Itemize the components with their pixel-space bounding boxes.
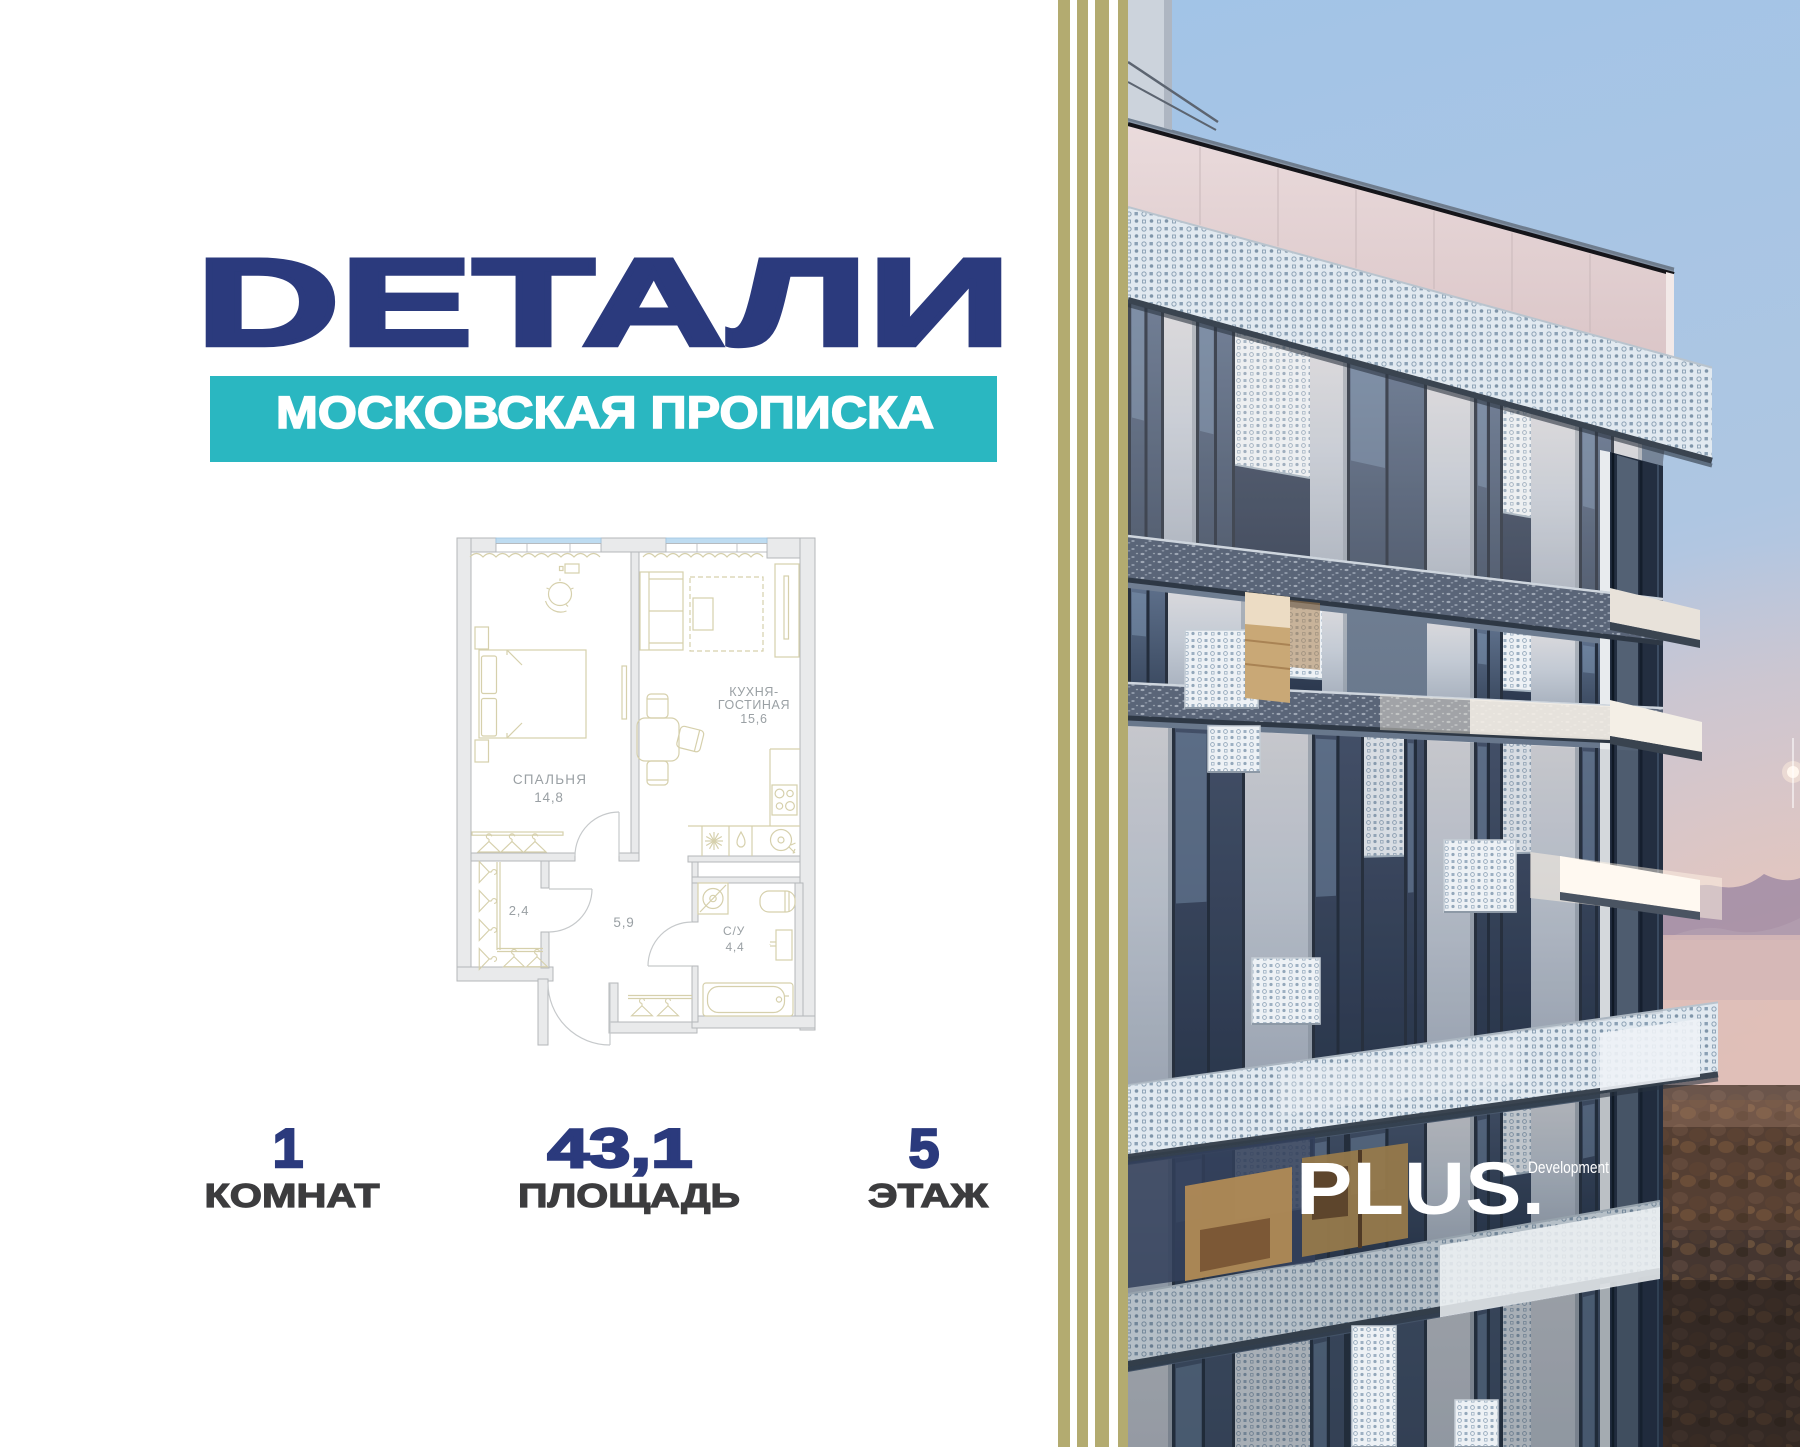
svg-text:14,8: 14,8	[534, 790, 563, 805]
svg-text:2,4: 2,4	[509, 903, 529, 918]
svg-text:Development: Development	[1528, 1158, 1609, 1177]
svg-text:DЕТАЛИ: DЕТАЛИ	[196, 240, 1011, 360]
svg-text:СПАЛЬНЯ: СПАЛЬНЯ	[513, 772, 587, 787]
svg-text:КОМНАТ: КОМНАТ	[205, 1177, 380, 1214]
svg-text:КУХНЯ-: КУХНЯ-	[729, 685, 779, 699]
svg-text:МОСКОВСКАЯ ПРОПИСКА: МОСКОВСКАЯ ПРОПИСКА	[276, 387, 934, 438]
svg-text:ГОСТИНАЯ: ГОСТИНАЯ	[718, 698, 790, 712]
svg-text:ЭТАЖ: ЭТАЖ	[868, 1177, 988, 1214]
svg-text:5,9: 5,9	[613, 915, 634, 930]
svg-text:PLUS.: PLUS.	[1296, 1147, 1545, 1230]
svg-text:1: 1	[273, 1117, 304, 1179]
svg-text:С/У: С/У	[723, 924, 745, 938]
svg-text:4,4: 4,4	[725, 940, 744, 954]
svg-text:15,6: 15,6	[740, 712, 768, 726]
svg-text:5: 5	[909, 1117, 940, 1179]
svg-text:ПЛОЩАДЬ: ПЛОЩАДЬ	[518, 1177, 740, 1214]
svg-text:43,1: 43,1	[548, 1117, 693, 1179]
